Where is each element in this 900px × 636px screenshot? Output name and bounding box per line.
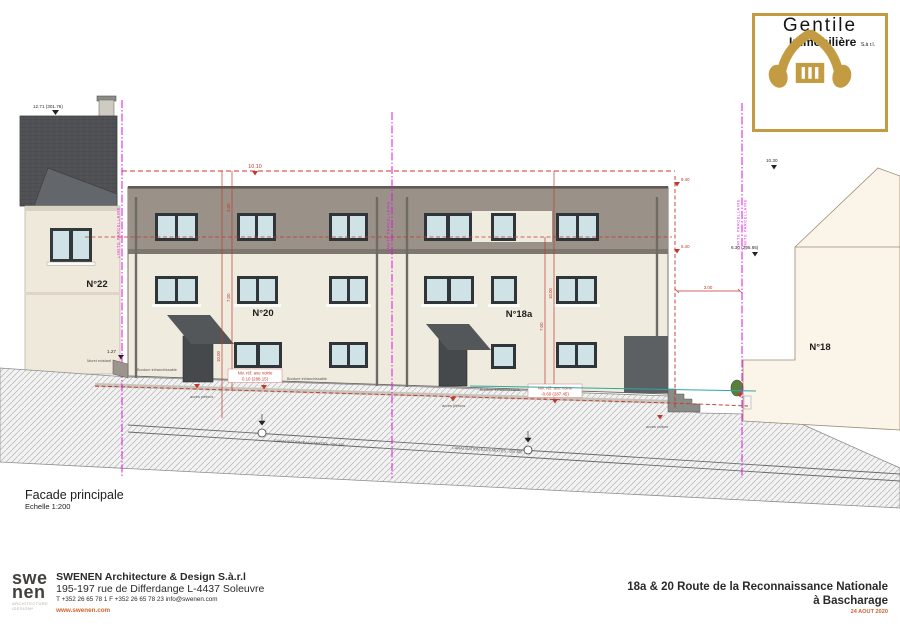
firm-contact: T +352 26 65 78 1 F +352 26 65 78 23 inf… bbox=[56, 596, 264, 603]
firm-website-link[interactable]: www.swenen.com bbox=[56, 607, 264, 614]
acces-pietons-label: accès piétons bbox=[442, 404, 465, 408]
level-940: 9.40 bbox=[681, 177, 690, 182]
niv-n20-line1: Niv. réf. axe voirie bbox=[238, 371, 273, 376]
drawing-sheet: N°22 12.71 (301.76) CANALISATION EAUX MI… bbox=[0, 0, 900, 636]
swenen-logo-sub: ARCHITECTURE /DESIGN* bbox=[12, 601, 48, 611]
n22-window bbox=[47, 228, 95, 265]
dim-7m-v: 7.00 bbox=[539, 322, 544, 331]
bordure-label: Bordure infranchissable bbox=[137, 368, 177, 372]
orange-star-icon: * bbox=[31, 606, 33, 611]
architect-block: swe nen ARCHITECTURE /DESIGN* SWENEN Arc… bbox=[12, 571, 264, 614]
n18-outline bbox=[743, 168, 900, 430]
existing-wall bbox=[113, 360, 128, 378]
house-window bbox=[815, 67, 818, 79]
limite-label: LIMITE PARCELLAIRE bbox=[116, 207, 121, 258]
acces-voiture-label: accès voiture bbox=[646, 425, 668, 429]
firm-info: SWENEN Architecture & Design S.à.r.l 195… bbox=[56, 571, 264, 614]
level-marker-icon bbox=[752, 252, 758, 257]
building-n22: N°22 12.71 (301.76) bbox=[20, 96, 120, 374]
dim-3m: 3.00 bbox=[704, 285, 713, 290]
parapet-line bbox=[128, 186, 668, 189]
house-window bbox=[808, 67, 811, 79]
swenen-logo: swe nen ARCHITECTURE /DESIGN* bbox=[12, 571, 48, 614]
limite-label: LIMITE PARCELLAIRE bbox=[743, 199, 748, 250]
drawing-caption: Facade principale Echelle 1:200 bbox=[25, 488, 124, 511]
house-door bbox=[802, 67, 805, 79]
firm-address: 195-197 rue de Differdange L-4437 Soleuv… bbox=[56, 583, 264, 595]
gentile-logo-box: Gentile Immobilière S.à r.l. bbox=[752, 13, 888, 132]
bordure-label: Bordure infranchissable bbox=[287, 377, 327, 381]
hands-roof-house-icon bbox=[755, 16, 865, 88]
muret-label: Muret existant bbox=[87, 359, 112, 363]
level-640: 6.40 bbox=[681, 244, 690, 249]
n20-label: N°20 bbox=[252, 308, 273, 319]
manhole-icon bbox=[258, 429, 266, 437]
level-marker-icon bbox=[252, 171, 258, 176]
level-127: 1.27 bbox=[107, 349, 116, 354]
drawing-title: Facade principale bbox=[25, 488, 124, 502]
building-n20-n18a: N°20 N°18a bbox=[128, 186, 700, 412]
n22-eave-shadow bbox=[25, 206, 120, 211]
n22-ridge-level: 12.71 (301.76) bbox=[33, 104, 63, 109]
limite-label: LIMITE PARCELLAIRE bbox=[736, 199, 741, 250]
level-marker-icon bbox=[771, 165, 777, 170]
n18-max-level: 10.30 bbox=[766, 158, 778, 163]
n22-label: N°22 bbox=[86, 279, 107, 290]
slab-band bbox=[128, 249, 668, 254]
bordure-label: Bordure infranchissable bbox=[480, 388, 520, 392]
niv-n20-value: 0.10 (288.15) bbox=[242, 377, 269, 382]
dim-3m-v: 3.00 bbox=[226, 203, 231, 212]
project-address-line1: 18a & 20 Route de la Reconnaissance Nati… bbox=[627, 580, 888, 594]
n22-floor-line bbox=[25, 292, 120, 295]
drawing-scale: Echelle 1:200 bbox=[25, 502, 124, 511]
swenen-sub-design: /DESIGN bbox=[12, 606, 31, 611]
swenen-logo-bottom: nen bbox=[12, 585, 48, 599]
gate-post bbox=[744, 396, 751, 409]
gabarit-dim: 10.10 bbox=[248, 164, 262, 170]
limite-label: LIMITE PARCELLAIRE bbox=[386, 201, 391, 252]
exterior-steps bbox=[668, 389, 700, 412]
dim-10m-v: 10.00 bbox=[216, 350, 221, 362]
dim-10m-v: 10.00 bbox=[548, 287, 553, 299]
level-marker-icon bbox=[52, 110, 59, 115]
entrance-volume bbox=[624, 336, 668, 393]
project-date: 24 AOUT 2020 bbox=[627, 609, 888, 615]
project-address-line2: à Bascharage bbox=[627, 594, 888, 608]
n18a-label: N°18a bbox=[506, 309, 533, 320]
chimney bbox=[99, 100, 114, 117]
firm-name: SWENEN Architecture & Design S.à.r.l bbox=[56, 571, 264, 583]
niv-n18a-value: -0.60 (287.45) bbox=[541, 392, 569, 397]
manhole-icon bbox=[524, 446, 532, 454]
acces-pietons-label: accès piétons bbox=[190, 395, 213, 399]
project-title-block: 18a & 20 Route de la Reconnaissance Nati… bbox=[627, 580, 888, 615]
building-n18: N°18 10.30 6.30 (295.65) bbox=[731, 158, 900, 430]
dim-7m-v: 7.00 bbox=[226, 293, 231, 302]
n18-label: N°18 bbox=[809, 342, 830, 353]
